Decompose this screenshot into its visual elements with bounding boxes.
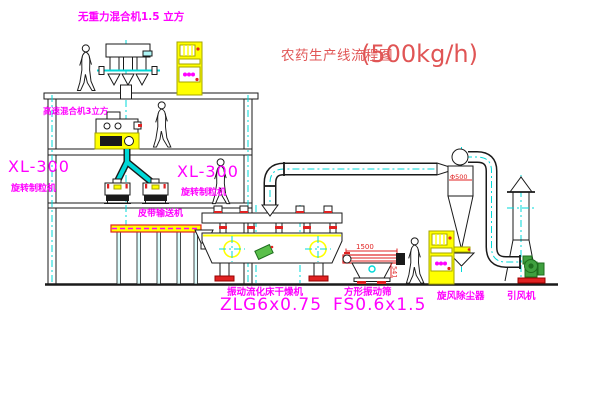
person-roof <box>77 45 95 91</box>
belt-conveyor <box>111 225 213 284</box>
high-speed-mixer <box>95 112 142 149</box>
label-granulator-left-model: XL-300 <box>8 159 70 175</box>
conveyor-legs <box>117 232 198 284</box>
label-cyclone: 旋风除尘器 <box>437 292 485 302</box>
page-title-capacity: (500kg/h) <box>361 42 478 66</box>
exhaust-duct-dryer-to-cyclone <box>262 162 448 216</box>
rotary-granulator-right <box>142 179 169 204</box>
pesticide-line-flow-diagram: 农药生产线流程图 (500kg/h) 无重力混合机1.5 立方 高速混合机3立方… <box>0 0 600 403</box>
person-near-sieve <box>406 238 423 283</box>
label-belt-conveyor: 皮带输送机 <box>138 210 183 219</box>
control-cabinet-right <box>429 231 454 284</box>
label-granulator-left-name: 旋转制粒机 <box>11 185 56 194</box>
label-sieve-model: FS0.6x1.5 <box>333 297 426 314</box>
label-high-speed-mixer: 高速混合机3立方 <box>43 108 108 117</box>
mixer-inlet-port <box>143 51 152 56</box>
dimension-sieve-height: 541 <box>391 266 398 278</box>
fluid-bed-dryer <box>202 205 342 283</box>
person-second-floor <box>153 102 170 147</box>
label-top-mixer: 无重力混合机1.5 立方 <box>78 12 184 23</box>
label-dryer-model: ZLG6x0.75 <box>220 297 322 314</box>
induced-draft-fan <box>518 256 545 283</box>
dimension-cyclone-diameter: Φ500 <box>450 174 468 181</box>
label-fan: 引风机 <box>507 292 536 302</box>
dimension-sieve-length: 1500 <box>356 244 374 251</box>
label-granulator-center-model: XL-300 <box>177 164 239 180</box>
control-cabinet-top <box>177 42 202 95</box>
dryer-ports <box>219 223 337 233</box>
label-granulator-center-name: 旋转制粒机 <box>181 189 226 198</box>
rotary-granulator-left <box>104 179 131 204</box>
